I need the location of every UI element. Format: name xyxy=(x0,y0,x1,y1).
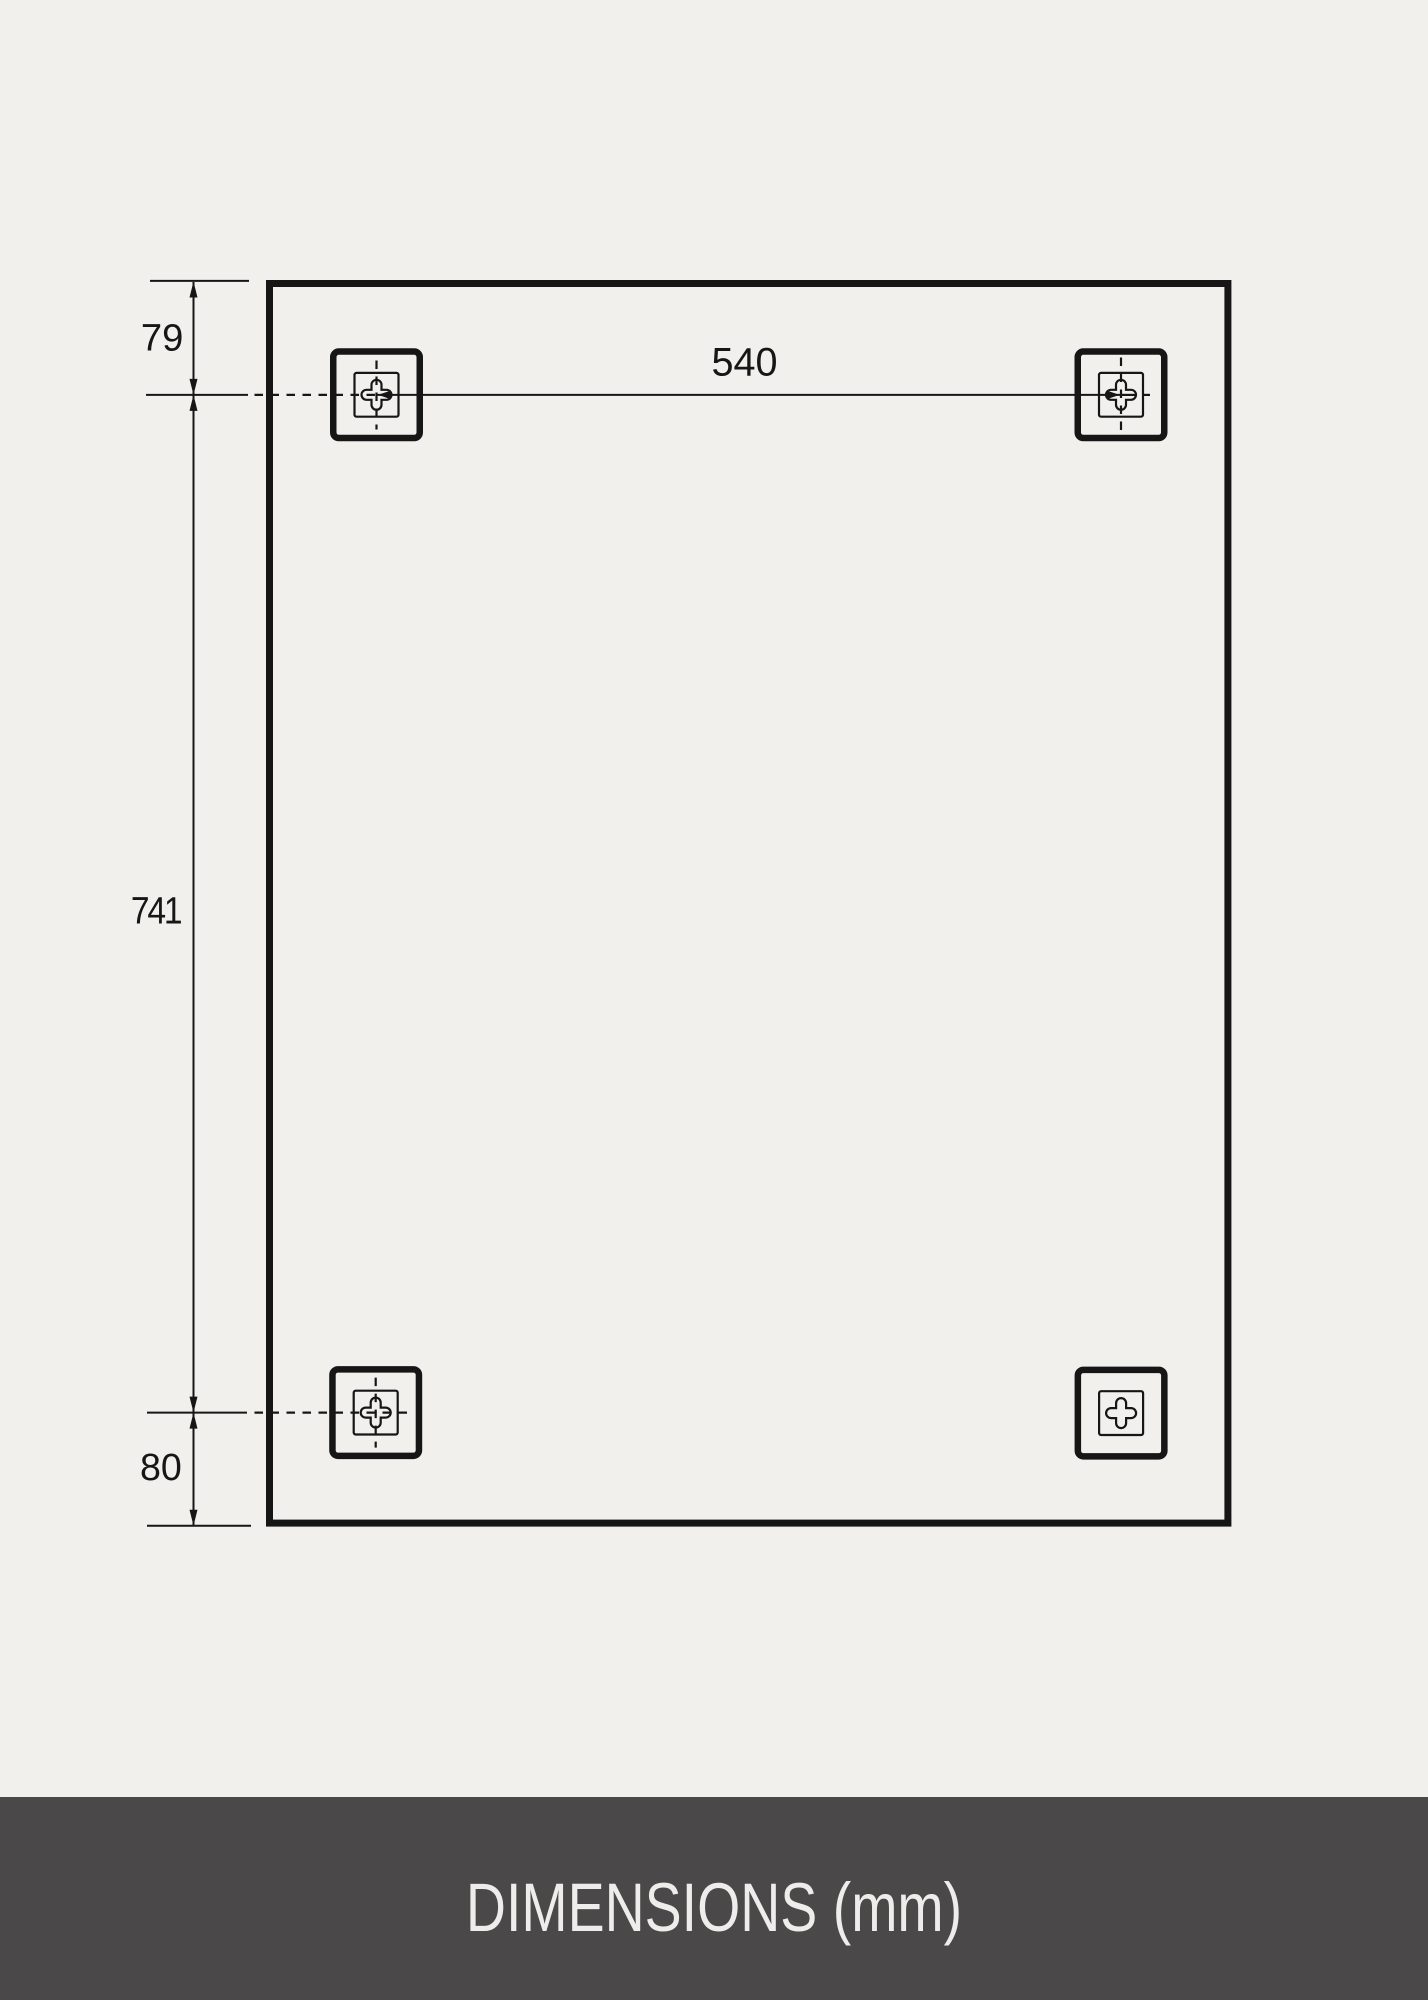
svg-text:DIMENSIONS (mm): DIMENSIONS (mm) xyxy=(466,1871,962,1947)
svg-text:79: 79 xyxy=(141,318,183,360)
svg-text:741: 741 xyxy=(131,890,182,932)
svg-text:80: 80 xyxy=(140,1447,182,1489)
svg-text:540: 540 xyxy=(711,340,777,384)
